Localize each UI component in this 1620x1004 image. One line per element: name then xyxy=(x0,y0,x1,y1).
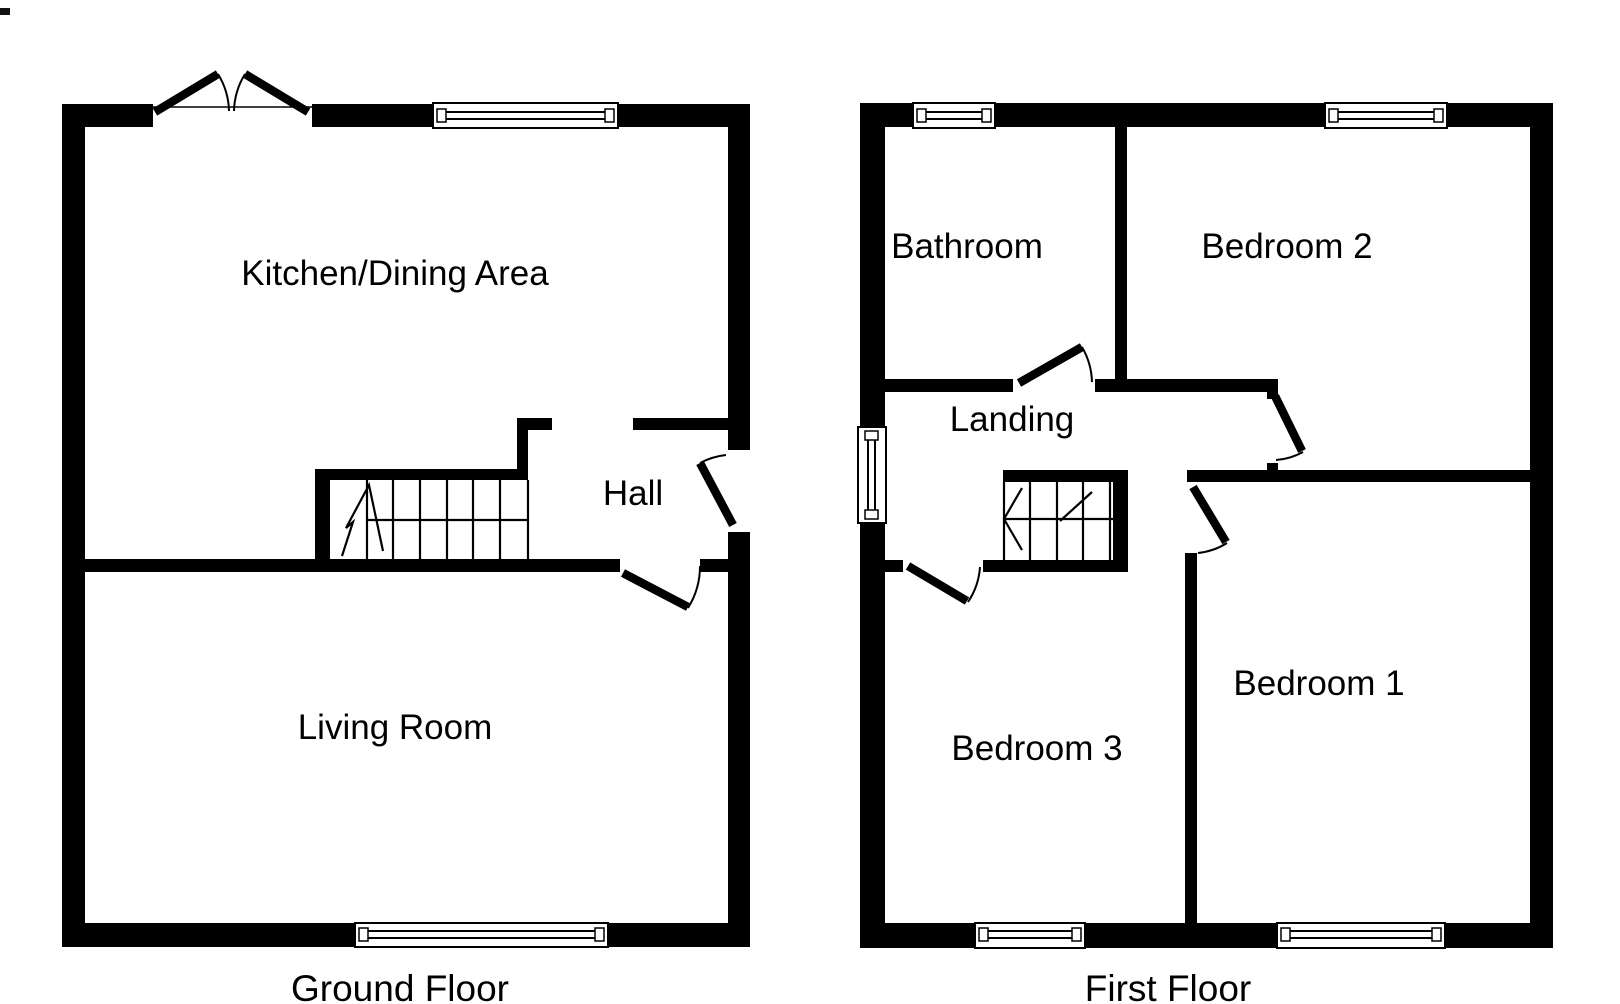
wall xyxy=(885,560,903,572)
window-landing-left xyxy=(858,427,886,523)
window-frame xyxy=(355,923,608,947)
window-bedroom2-top xyxy=(1325,103,1447,128)
wall xyxy=(62,923,355,947)
window-post xyxy=(1432,928,1441,941)
wall xyxy=(1445,923,1553,948)
wall xyxy=(618,104,728,127)
wall xyxy=(860,103,885,427)
wall xyxy=(1267,463,1278,470)
wall xyxy=(62,104,85,947)
window-post xyxy=(1072,928,1081,941)
room-label-bedroom1: Bedroom 1 xyxy=(1233,664,1404,703)
window-post xyxy=(865,510,878,519)
wall xyxy=(995,103,1325,127)
wall xyxy=(885,379,1013,392)
page-background xyxy=(0,0,1620,1004)
wall xyxy=(1187,470,1530,482)
room-label-hall: Hall xyxy=(603,474,663,513)
wall xyxy=(700,559,728,572)
room-label-bathroom: Bathroom xyxy=(891,227,1043,266)
wall xyxy=(315,469,330,559)
wall xyxy=(85,559,620,572)
wall xyxy=(728,532,750,947)
floor-title-ground: Ground Floor xyxy=(291,968,509,1004)
room-label-kitchen: Kitchen/Dining Area xyxy=(241,254,549,293)
window-frame xyxy=(975,923,1085,948)
window-post xyxy=(595,928,604,941)
window-post xyxy=(979,928,988,941)
window-post xyxy=(917,109,926,122)
wall xyxy=(312,104,433,127)
window-bathroom-top xyxy=(913,103,995,128)
window-post xyxy=(359,928,368,941)
wall xyxy=(517,418,552,430)
window-post xyxy=(1281,928,1290,941)
wall xyxy=(728,104,750,450)
wall xyxy=(1185,553,1197,923)
room-label-landing: Landing xyxy=(950,400,1075,439)
wall xyxy=(315,469,528,480)
wall xyxy=(1095,379,1278,392)
wall xyxy=(1003,470,1128,482)
window-bedroom3-bottom xyxy=(975,923,1085,948)
wall xyxy=(860,923,975,948)
wall xyxy=(1115,127,1127,392)
window-post xyxy=(982,109,991,122)
wall xyxy=(633,418,728,430)
window-frame xyxy=(858,427,886,523)
room-label-living-room: Living Room xyxy=(298,708,493,747)
window-post xyxy=(605,109,614,122)
window-post xyxy=(1434,109,1443,122)
window-living-bottom xyxy=(355,923,608,947)
wall xyxy=(1113,482,1128,572)
window-post xyxy=(1329,109,1338,122)
window-bedroom1-bottom xyxy=(1277,923,1445,948)
window-frame xyxy=(433,103,618,128)
floor-title-first: First Floor xyxy=(1085,968,1252,1004)
room-label-bedroom2: Bedroom 2 xyxy=(1201,227,1372,266)
wall xyxy=(983,560,1128,572)
window-kitchen-top xyxy=(433,103,618,128)
room-label-bedroom3: Bedroom 3 xyxy=(951,729,1122,768)
wall xyxy=(608,923,750,947)
wall xyxy=(860,523,885,948)
window-post xyxy=(437,109,446,122)
corner-artifact xyxy=(0,8,10,15)
floorplan-canvas: Kitchen/Dining Area Hall Living Room Gro… xyxy=(0,0,1620,1004)
wall xyxy=(1530,103,1553,948)
wall xyxy=(1085,923,1277,948)
window-frame xyxy=(1277,923,1445,948)
window-frame xyxy=(1325,103,1447,128)
window-post xyxy=(865,431,878,440)
